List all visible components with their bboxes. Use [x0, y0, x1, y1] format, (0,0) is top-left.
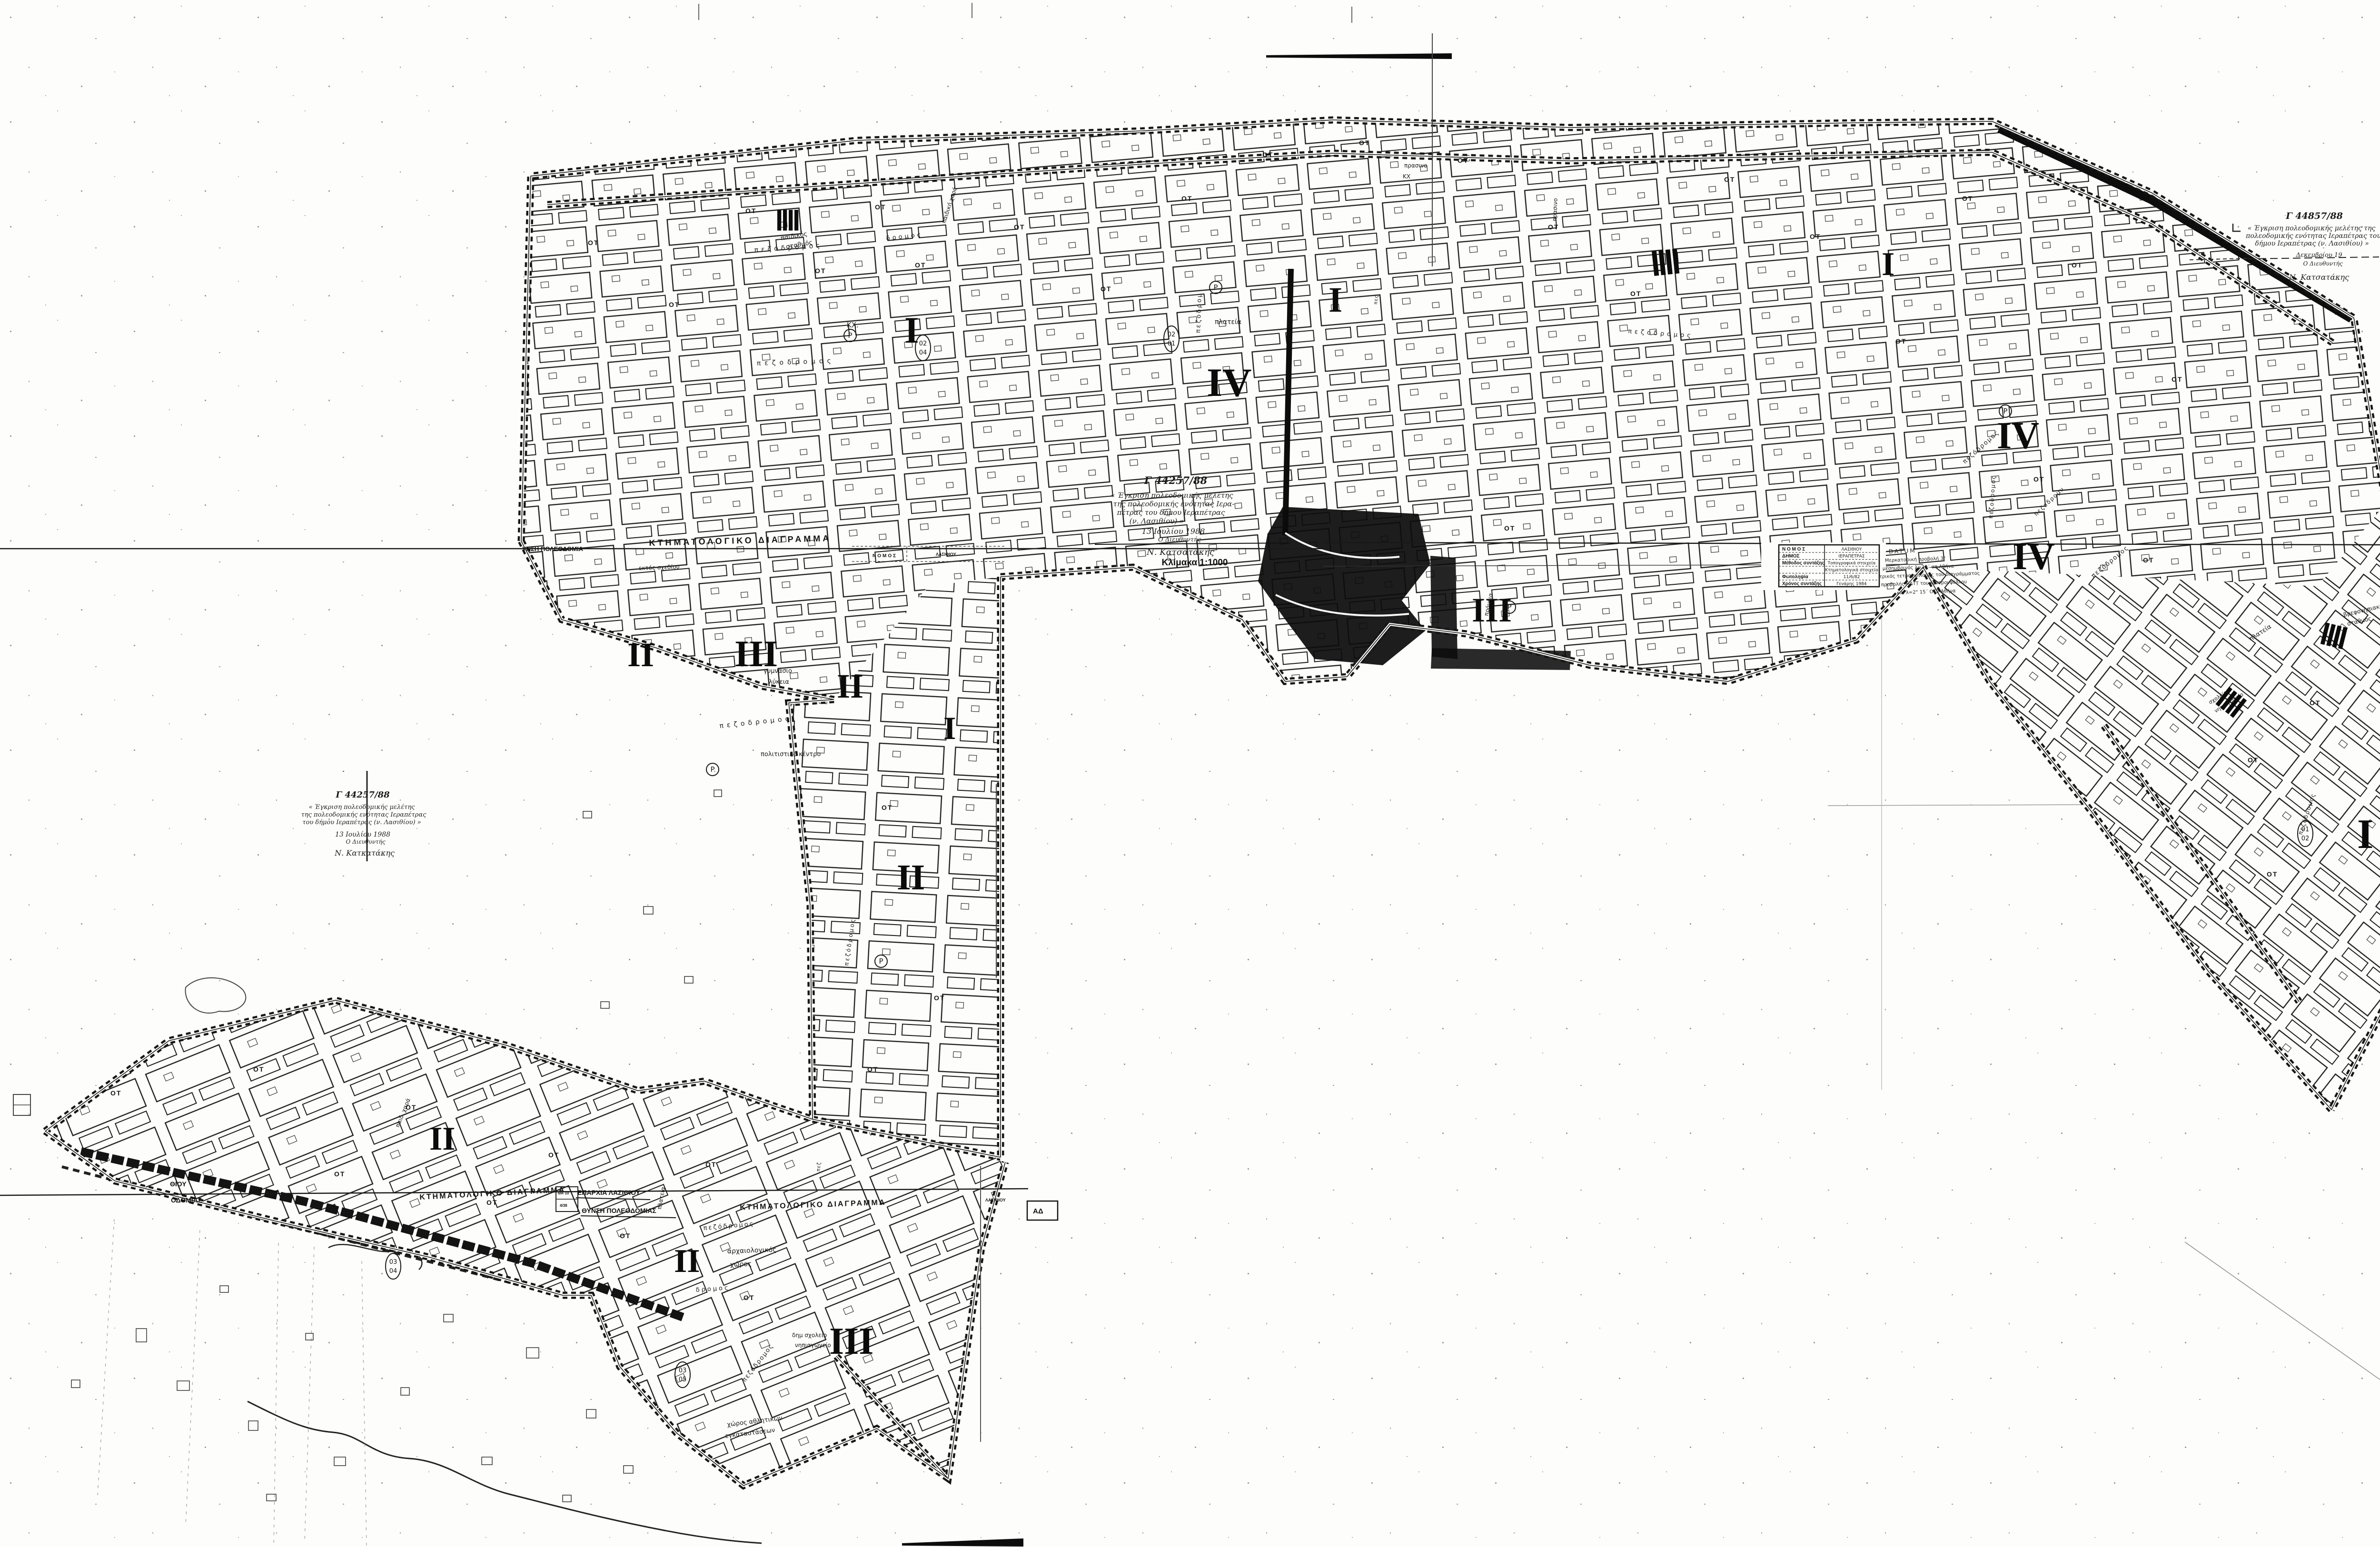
note-ref: Γ 44257/88 — [1144, 474, 1208, 486]
svg-text:Ν. Κατσατάκης: Ν. Κατσατάκης — [2289, 273, 2349, 282]
place-label: χώρος — [730, 1260, 752, 1269]
svg-text:της πολεοδομικής ενότητας Ιερα: της πολεοδομικής ενότητας Ιερα- — [1113, 500, 1235, 508]
partial-admin-label: ΕΠΑΡΧΙΑ ΛΑΣΙΘΙΟΥ — [577, 1189, 641, 1196]
place-label: πρασινο — [1551, 198, 1559, 221]
sector-numeral: III — [829, 1320, 873, 1362]
svg-text:« Έγκριση πολεοδομικής μελέτης: « Έγκριση πολεοδομικής μελέτης της — [2248, 224, 2376, 232]
block-ot-label: ΟΤ — [744, 1294, 754, 1301]
svg-text:P: P — [1213, 283, 1218, 292]
block-ot-label: ΟΤ — [1262, 151, 1273, 158]
block-ot-label: ΟΤ — [2143, 556, 2154, 564]
sector-numeral: II — [897, 857, 925, 897]
svg-text:Ο Διευθυντής: Ο Διευθυντής — [2303, 260, 2342, 267]
svg-text:Φωτοληψία: Φωτοληψία — [1782, 574, 1809, 580]
place-label: εκτός σχεδίου — [639, 563, 680, 572]
svg-text:P: P — [848, 331, 852, 340]
sector-numeral: II — [674, 1243, 700, 1280]
block-ot-label: ΟΤ — [669, 301, 680, 308]
svg-text:Γ 44257/88: Γ 44257/88 — [335, 790, 390, 800]
sector-numeral: I — [2357, 811, 2373, 857]
block-ot-label: ΟΤ — [253, 1065, 264, 1073]
svg-text:Κτηματολογικά στοιχεία: Κτηματολογικά στοιχεία — [1825, 568, 1878, 573]
partial-admin-label: ΥΝΣΗ ΠΟΛΕΟΔΟΜΙΑ — [522, 545, 584, 552]
legend-row: Μέθοδος συντάξης Τοπογραφικά στοιχεία — [1782, 561, 1875, 566]
note-signature: Ν. Κατσατάκης — [1146, 547, 1215, 557]
place-label: ΚΧ. — [847, 321, 859, 329]
block-ot-label: ΟΤ — [2033, 475, 2044, 483]
block-ot-label: ΟΤ — [867, 1065, 878, 1073]
svg-text:του δήμου Ιεραπέτρας (ν. Λασιθ: του δήμου Ιεραπέτρας (ν. Λασιθίου) » — [302, 819, 421, 826]
place-label: δημ σχολείο — [792, 1332, 827, 1339]
svg-text:πολεοδομικής ενότητας Ιεραπέτρ: πολεοδομικής ενότητας Ιεραπέτρας του — [2245, 232, 2380, 240]
block-ot-label: ΟΤ — [1895, 337, 1906, 345]
block-ot-label: ΟΤ — [588, 239, 599, 246]
sector-numeral: III — [1472, 591, 1512, 629]
svg-text:Ο Διευθυντής: Ο Διευθυντής — [1158, 536, 1201, 543]
partial-admin-label: ΟΔΟΜΙΑΣ — [171, 1196, 202, 1204]
partial-admin-label: ΝΟΜΟΣ — [873, 553, 897, 559]
place-label: πρασινο — [1404, 162, 1427, 169]
svg-text:ΙΕΡΑΠΕΤΡΑΣ: ΙΕΡΑΠΕΤΡΑΣ — [1838, 554, 1864, 559]
sector-numeral: II — [627, 636, 654, 674]
legend-table: Ν Ο Μ Ο Σ ΛΑΣΙΘΙΟΥ ΔΗΜΟΣ ΙΕΡΑΠΕΤΡΑΣ Μέθο… — [1761, 542, 1886, 590]
block-ot-label: ΟΤ — [334, 1170, 345, 1178]
partial-admin-label: ΘΥΝΣΗ ΠΟΛΕΟΔΟΜΙΑΣ — [582, 1207, 656, 1214]
scale-label: Κλίμακα 1:1000 — [1162, 558, 1228, 568]
svg-text:05: 05 — [679, 1376, 687, 1383]
place-label: πλατεία — [1215, 318, 1241, 326]
sector-numeral: IV — [1997, 415, 2039, 457]
svg-text:11/6/82: 11/6/82 — [1844, 575, 1860, 580]
svg-text:Ν. Κατκατάκης: Ν. Κατκατάκης — [334, 848, 395, 857]
svg-text:Γενάρης 1984: Γενάρης 1984 — [1836, 582, 1867, 587]
sector-numeral: II — [429, 1121, 455, 1157]
svg-text:Χρόνος συντάξης: Χρόνος συντάξης — [1782, 581, 1822, 587]
block-ot-label: ΟΤ — [875, 203, 886, 211]
block-ot-label: ΟΤ — [2310, 699, 2320, 707]
block-ot-label: ΟΤ — [1504, 524, 1515, 532]
partial-admin-label: ΑΔ — [1033, 1207, 1043, 1215]
block-ot-label: ΟΤ — [1548, 223, 1559, 231]
block-ot-label: ΟΤ — [2248, 756, 2259, 764]
svg-text:P: P — [879, 957, 883, 966]
partial-admin-label: ΘΑ·10 — [558, 1191, 569, 1195]
svg-text:P: P — [2003, 407, 2007, 415]
street-label: πεζ — [816, 1162, 822, 1172]
block-ot-label: ΟΤ — [110, 1089, 121, 1097]
block-ot-label: ΟΤ — [1630, 290, 1641, 297]
sector-numeral: I — [943, 710, 956, 746]
place-label: ΚΧ — [1403, 173, 1410, 180]
block-ot-label: ΟΤ — [705, 1161, 716, 1168]
svg-text:02: 02 — [1168, 331, 1176, 338]
svg-text:(ν. Λασιθίου) »: (ν. Λασιθίου) » — [1130, 517, 1184, 525]
place-label: λύκεια — [769, 679, 789, 686]
block-ot-label: ΟΤ — [934, 994, 945, 1002]
block-ot-label: ΟΤ — [1014, 223, 1025, 231]
sector-numeral: I — [1329, 280, 1342, 320]
block-ot-label: ΟΤ — [486, 1199, 497, 1206]
svg-text:ΔΗΜΟΣ: ΔΗΜΟΣ — [1782, 554, 1800, 559]
svg-text:« Έγκριση πολεοδομικής μελέτης: « Έγκριση πολεοδομικής μελέτης — [1111, 491, 1233, 500]
svg-text:13 Ιουλίου 1988: 13 Ιουλίου 1988 — [335, 830, 390, 838]
block-ot-label: ΟΤ — [1181, 195, 1192, 202]
partial-admin-label: ΛΑΣΙΘΙΟΥ — [985, 1198, 1006, 1202]
datum-line: DATUM — [1889, 547, 1916, 555]
block-ot-label: ΟΤ — [1962, 195, 1973, 202]
svg-text:03: 03 — [679, 1367, 687, 1374]
svg-text:02: 02 — [919, 340, 927, 347]
block-ot-label: ΟΤ — [620, 1232, 631, 1240]
svg-text:03: 03 — [389, 1259, 397, 1266]
block-ot-label: ΟΤ — [1724, 176, 1735, 183]
block-ot-label: ΟΤ — [2072, 261, 2082, 269]
legend-row: Κτηματολογικά στοιχεία — [1825, 568, 1878, 573]
svg-text:« Έγκριση πολεοδομικής μελέτης: « Έγκριση πολεοδομικής μελέτης — [309, 804, 416, 811]
sector-numeral: II — [837, 667, 863, 705]
svg-text:Ν Ο Μ Ο Σ: Ν Ο Μ Ο Σ — [1782, 547, 1805, 552]
block-ot-label: ΟΤ — [915, 261, 926, 269]
block-ot-label: ΟΤ — [2172, 375, 2182, 383]
sector-numeral: III — [734, 633, 778, 674]
block-ot-label: ΟΤ — [1458, 157, 1468, 164]
scanned-cadastral-map: Ν Ο Μ Ο Σ ΛΑΣΙΘΙΟΥ ΔΗΜΟΣ ΙΕΡΑΠΕΤΡΑΣ Μέθο… — [0, 0, 2380, 1547]
svg-text:13 Ιουλίου 1988: 13 Ιουλίου 1988 — [1142, 527, 1205, 536]
svg-text:Μέθοδος συντάξης: Μέθοδος συντάξης — [1782, 561, 1825, 566]
svg-text:02: 02 — [2301, 835, 2310, 842]
sector-numeral: I — [904, 309, 919, 351]
svg-text:01: 01 — [2301, 826, 2310, 833]
block-ot-label: ΟΤ — [815, 267, 826, 275]
svg-text:δήμου Ιεραπέτρας (ν. Λασιθίου): δήμου Ιεραπέτρας (ν. Λασιθίου) » — [2255, 239, 2369, 247]
partial-admin-label: ΘΙΟΥ — [170, 1180, 187, 1188]
svg-text:01: 01 — [1168, 340, 1176, 347]
svg-text:της πολεοδομικής ενότητας Ιερα: της πολεοδομικής ενότητας Ιεραπέτρας — [301, 811, 426, 818]
block-ot-label: ΟΤ — [1810, 233, 1821, 240]
svg-text:ΛΑΣΙΘΙΟΥ: ΛΑΣΙΘΙΟΥ — [1842, 547, 1862, 552]
svg-text:πέτρας του δήμου Ιεραπέτρας: πέτρας του δήμου Ιεραπέτρας — [1117, 508, 1225, 517]
block-ot-label: ΟΤ — [406, 1104, 416, 1111]
svg-text:Γ 44857/88: Γ 44857/88 — [2285, 211, 2343, 221]
partial-admin-label: 4/38 — [560, 1203, 567, 1208]
svg-text:Τοπογραφικά στοιχεία: Τοπογραφικά στοιχεία — [1827, 561, 1876, 566]
partial-admin-label: ΛΑΣΙΘΙΟΥ — [936, 552, 956, 557]
block-ot-label: ΟΤ — [1359, 139, 1370, 147]
svg-text:Ο Διευθυντής: Ο Διευθυντής — [346, 838, 385, 845]
svg-text:P: P — [1507, 603, 1511, 611]
sector-numeral: I — [1882, 246, 1894, 283]
svg-text:P: P — [710, 765, 714, 774]
street-label: πεζοδρομ — [1195, 292, 1203, 333]
block-ot-label: ΟΤ — [548, 1151, 559, 1159]
block-ot-label: ΟΤ — [745, 207, 756, 215]
block-ot-label: ΟΤ — [882, 804, 892, 811]
svg-text:Δεκεμβρίου 19: Δεκεμβρίου 19 — [2296, 252, 2342, 259]
block-ot-label: ΟΤ — [1101, 285, 1111, 293]
place-label: νηπιαγωγείο — [795, 1342, 831, 1349]
svg-text:04: 04 — [919, 349, 927, 356]
street-label: πες — [1373, 295, 1379, 305]
place-label: πολιτιστικό κέντρο — [761, 751, 821, 758]
svg-text:04: 04 — [389, 1268, 397, 1275]
block-ot-label: ΟΤ — [2267, 870, 2278, 878]
sector-numeral: IV — [1207, 360, 1251, 405]
sector-numeral: IV — [2013, 536, 2055, 578]
